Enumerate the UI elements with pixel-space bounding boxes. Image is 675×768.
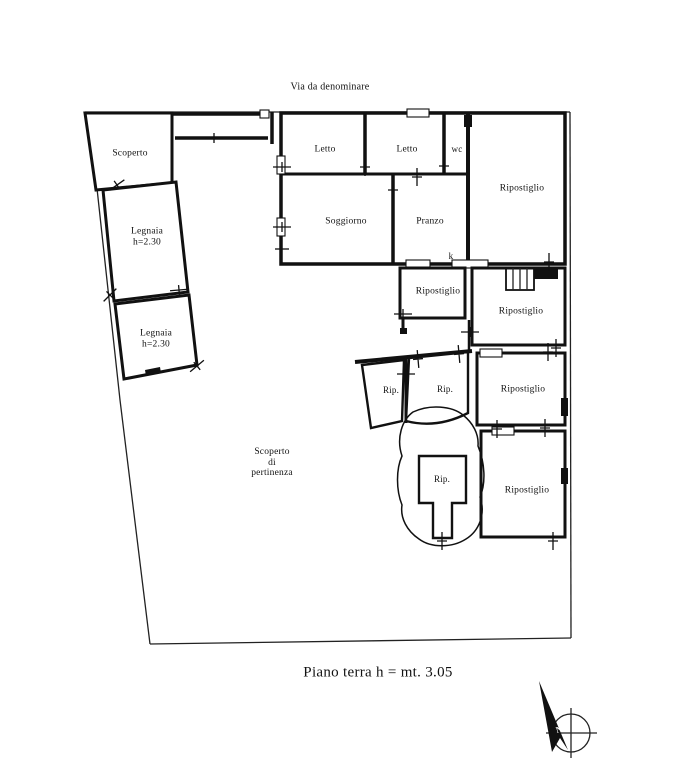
north-compass-icon: N <box>539 681 597 758</box>
legnaia-lower-name: Legnaia <box>140 328 172 339</box>
room-label-pranzo: Pranzo <box>416 217 444 228</box>
room-label-letto-left: Letto <box>314 145 335 156</box>
courtyard-label: Scoperto di pertinenza <box>251 447 293 479</box>
courtyard-line3: pertinenza <box>251 468 293 479</box>
courtyard-line1: Scoperto <box>251 447 293 458</box>
room-label-ripostiglio-bottom-right: Ripostiglio <box>505 486 549 497</box>
room-label-letto-right: Letto <box>396 145 417 156</box>
room-label-soggiorno: Soggiorno <box>325 217 366 228</box>
room-label-scoperto: Scoperto <box>112 149 147 160</box>
room-label-ripostiglio-center: Ripostiglio <box>416 287 460 298</box>
room-label-wc: wc <box>452 144 463 154</box>
plan-caption: Piano terra h = mt. 3.05 <box>303 665 452 682</box>
storeroom-center <box>400 268 469 352</box>
storerooms-right <box>477 349 568 537</box>
small-rip-rooms <box>355 351 472 428</box>
legnaia-upper-name: Legnaia <box>131 226 163 237</box>
terrace-walls <box>172 110 272 144</box>
room-label-rip-small-left: Rip. <box>383 385 399 395</box>
room-label-rip-island: Rip. <box>434 474 450 484</box>
compass-north-letter: N <box>555 723 565 735</box>
street-label: Via da denominare <box>291 81 370 92</box>
kitchen-mark: k <box>449 251 454 261</box>
floorplan-page: N Via da denominare Scoperto Legnaia h=2… <box>0 0 675 768</box>
room-label-ripostiglio-mid-right: Ripostiglio <box>501 385 545 396</box>
room-label-ripostiglio-stair: Ripostiglio <box>499 307 543 318</box>
floorplan-drawing: N <box>0 0 675 768</box>
legnaia-lower-height: h=2.30 <box>140 339 172 350</box>
room-label-rip-small-right: Rip. <box>437 384 453 394</box>
room-label-legnaia-upper: Legnaia h=2.30 <box>131 226 163 247</box>
room-label-ripostiglio-top-right: Ripostiglio <box>500 184 544 195</box>
room-label-legnaia-lower: Legnaia h=2.30 <box>140 328 172 349</box>
legnaia-upper-height: h=2.30 <box>131 237 163 248</box>
courtyard-line2: di <box>251 458 293 469</box>
